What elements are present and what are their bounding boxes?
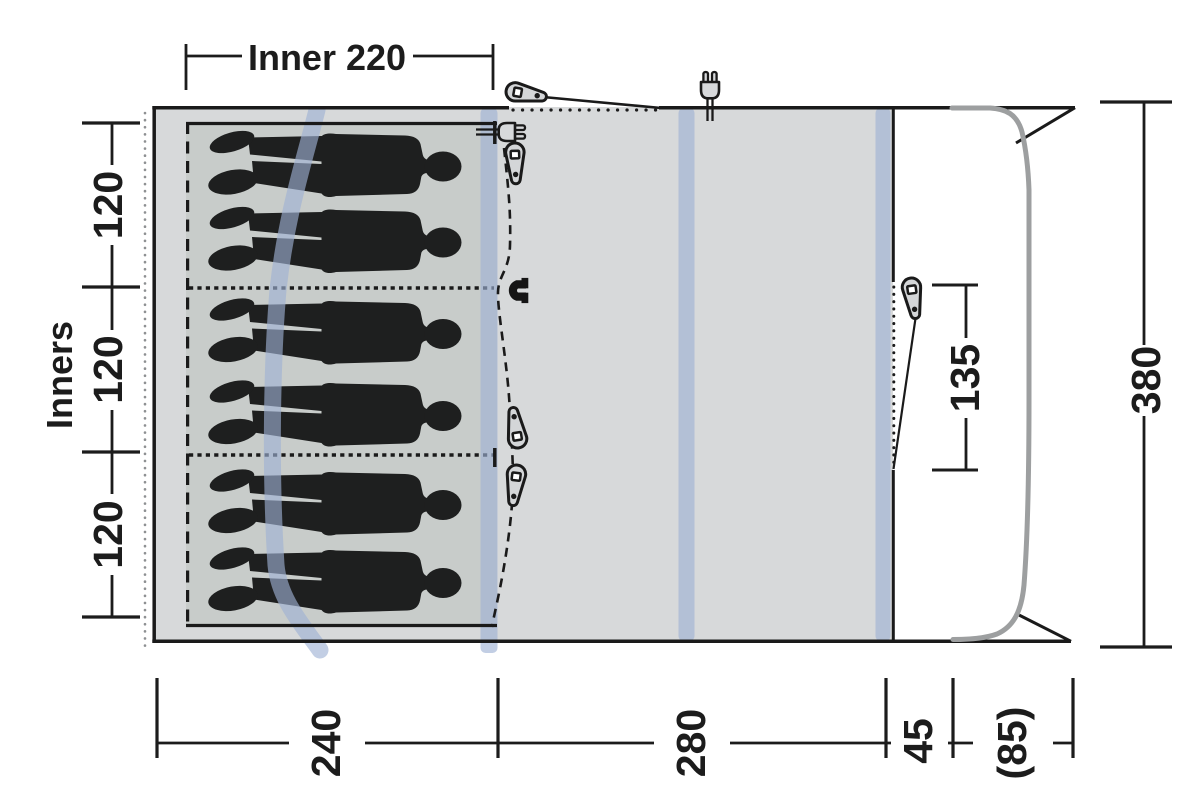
svg-text:135: 135 xyxy=(942,344,988,412)
svg-text:120: 120 xyxy=(85,171,131,239)
svg-text:240: 240 xyxy=(303,709,349,777)
svg-text:280: 280 xyxy=(668,709,714,777)
svg-text:Inner 220: Inner 220 xyxy=(248,37,406,78)
svg-text:120: 120 xyxy=(85,500,131,568)
svg-text:45: 45 xyxy=(895,718,941,764)
svg-text:380: 380 xyxy=(1123,346,1169,414)
svg-text:120: 120 xyxy=(85,335,131,403)
svg-text:(85): (85) xyxy=(989,707,1035,780)
svg-text:Inners: Inners xyxy=(39,321,80,429)
